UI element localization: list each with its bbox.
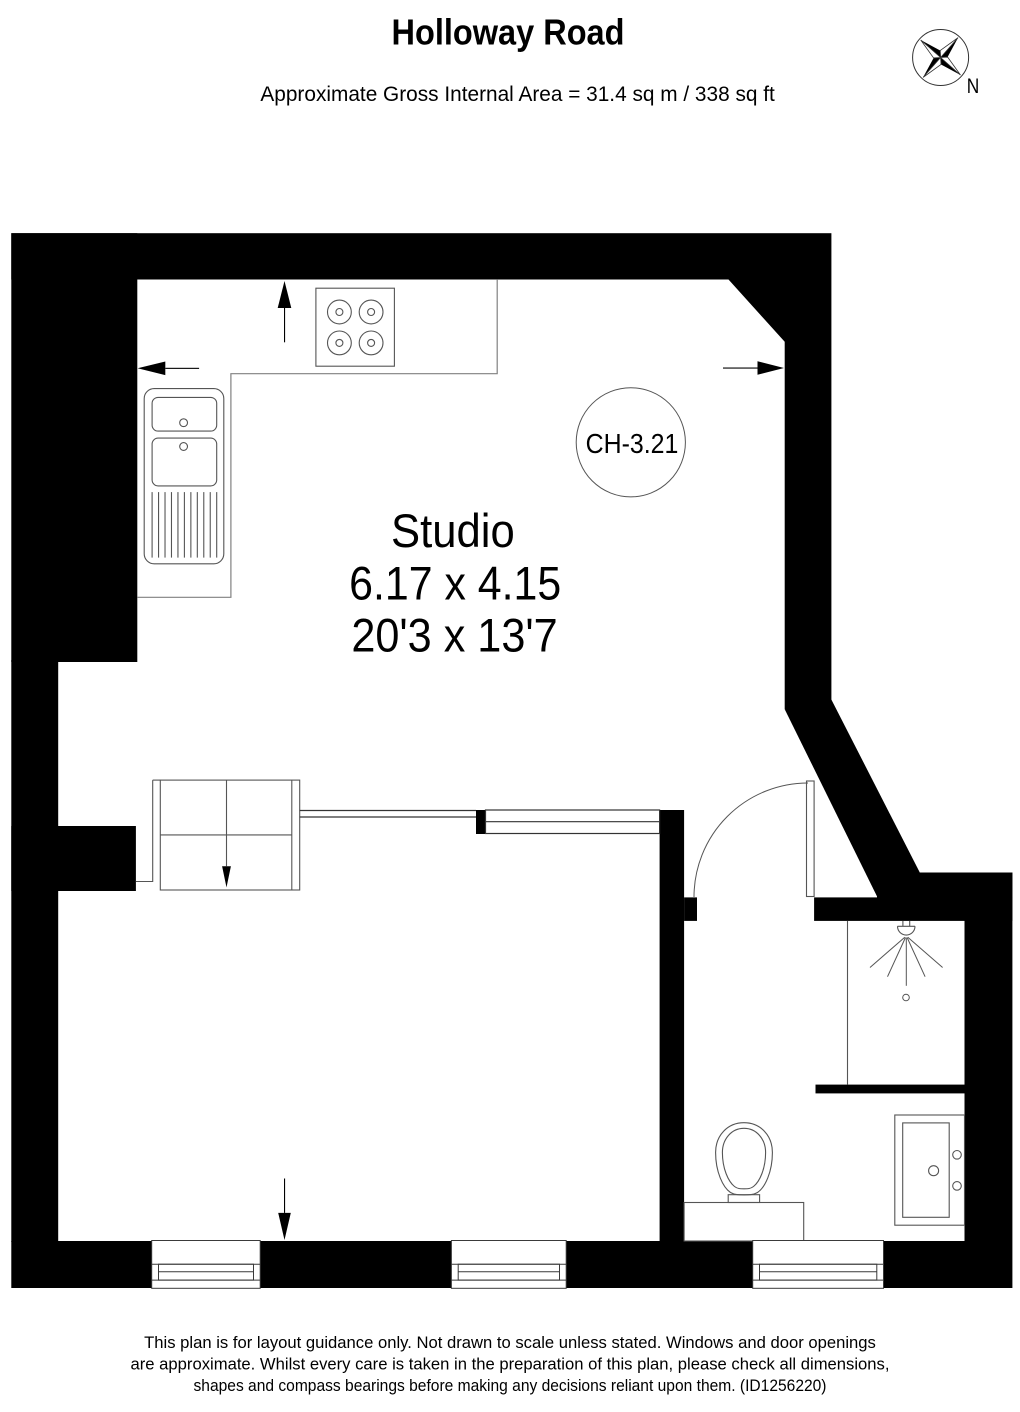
svg-text:Studio: Studio [391,504,515,557]
svg-text:This plan is for layout guidan: This plan is for layout guidance only. N… [144,1334,876,1352]
svg-text:shapes and compass bearings be: shapes and compass bearings before makin… [194,1377,827,1395]
svg-text:Approximate Gross Internal Are: Approximate Gross Internal Area = 31.4 s… [260,83,775,106]
svg-text:N: N [967,74,980,98]
svg-text:6.17 x 4.15: 6.17 x 4.15 [349,557,561,610]
svg-text:Holloway Road: Holloway Road [392,11,625,52]
svg-text:are approximate. Whilst every: are approximate. Whilst every care is ta… [131,1356,890,1374]
svg-text:20'3 x 13'7: 20'3 x 13'7 [351,609,557,662]
svg-text:CH-3.21: CH-3.21 [586,428,679,459]
